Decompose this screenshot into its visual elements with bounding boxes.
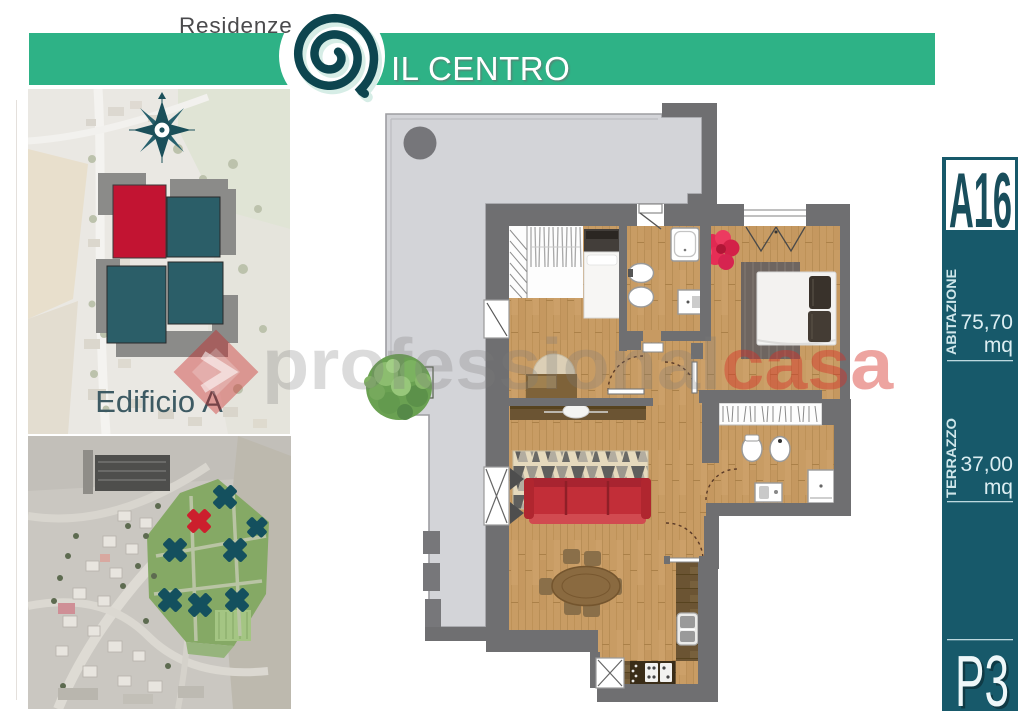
svg-text:75,70: 75,70	[960, 311, 1013, 334]
svg-text:P3: P3	[955, 642, 1009, 711]
svg-text:37,00: 37,00	[960, 453, 1013, 476]
svg-text:mq: mq	[984, 334, 1013, 357]
svg-text:TERRAZZO: TERRAZZO	[944, 418, 959, 498]
svg-text:A16: A16	[949, 157, 1012, 244]
svg-text:ABITAZIONE: ABITAZIONE	[944, 269, 959, 355]
svg-text:mq: mq	[984, 476, 1013, 499]
